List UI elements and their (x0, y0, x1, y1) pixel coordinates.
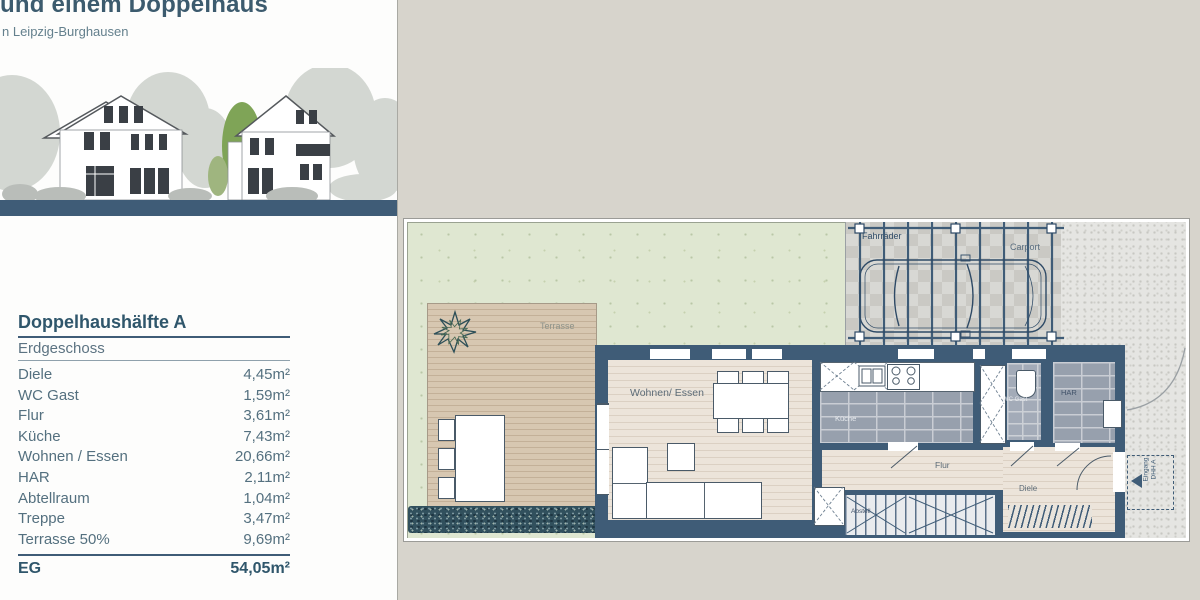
window (1012, 349, 1046, 359)
door-gap-kitchen (888, 442, 918, 451)
terrace-door (597, 403, 609, 495)
row-label: Wohnen / Essen (18, 447, 128, 468)
total-row: EG54,05m² (18, 554, 290, 578)
terrace-chair (438, 448, 455, 470)
row-value: 4,45m² (243, 365, 290, 386)
table-row: Flur3,61m² (18, 406, 290, 427)
terrace-chair (438, 477, 455, 499)
entrance-door (1113, 452, 1125, 492)
window (752, 349, 782, 359)
page-title: und einem Doppelhaus (0, 0, 268, 19)
tall-cabinet (980, 365, 1006, 444)
total-value: 54,05m² (230, 560, 290, 578)
row-label: Flur (18, 406, 44, 427)
washing-machine (1103, 400, 1122, 428)
row-value: 20,66m² (235, 447, 290, 468)
flur-label: Flur (935, 460, 950, 470)
row-label: Abtellraum (18, 489, 90, 510)
staircase (845, 495, 995, 535)
abstell-label: Abstell (851, 508, 871, 515)
dining-chair (717, 418, 739, 433)
plan-sheet: Terrasse Fahrräder Carport (407, 222, 1186, 538)
eingang-label: Eingang DHH A (1143, 446, 1158, 494)
door-gap-har (1055, 443, 1080, 451)
dining-chair (742, 418, 764, 433)
area-table: Doppelhaushälfte A Erdgeschoss Diele4,45… (18, 312, 290, 578)
page: { "header": { "title": "und einem Doppel… (0, 0, 1200, 600)
table-row: HAR2,11m² (18, 468, 290, 489)
floor-label: Erdgeschoss (18, 338, 290, 361)
carport-label: Carport (1010, 242, 1040, 252)
terrace-chair (438, 419, 455, 441)
side-table (667, 443, 695, 471)
floor-plan: Terrasse Fahrräder Carport (403, 218, 1190, 542)
elevation-drawing (0, 68, 397, 216)
row-value: 3,47m² (243, 509, 290, 530)
terrace-label: Terrasse (540, 321, 575, 331)
bikes-label: Fahrräder (862, 231, 902, 241)
entrance-zone: Eingang DHH A (1127, 455, 1174, 510)
row-value: 2,11m² (244, 468, 290, 489)
row-label: WC Gast (18, 386, 79, 407)
row-label: Diele (18, 365, 52, 386)
house: Wohnen/ Essen Küche WC Gast HAR Flur Die… (595, 345, 1125, 538)
row-value: 1,04m² (243, 489, 290, 510)
har-label: HAR (1061, 388, 1077, 397)
sofa-chaise (612, 447, 648, 519)
wohnen-essen-label: Wohnen/ Essen (630, 387, 704, 399)
wc-gast-label: WC Gast (1003, 397, 1027, 403)
hedge (408, 506, 600, 533)
table-row: WC Gast1,59m² (18, 386, 290, 407)
row-label: Terrasse 50% (18, 530, 110, 551)
table-row: Abtellraum1,04m² (18, 489, 290, 510)
row-label: HAR (18, 468, 50, 489)
row-label: Küche (18, 427, 61, 448)
terrace-table (455, 415, 505, 502)
ground-band (0, 200, 397, 216)
doormat (1008, 505, 1092, 528)
wardrobe (814, 487, 845, 526)
total-label: EG (18, 560, 41, 578)
window (650, 349, 690, 359)
window (712, 349, 746, 359)
row-value: 3,61m² (243, 406, 290, 427)
dining-chair (767, 418, 789, 433)
row-label: Treppe (18, 509, 65, 530)
row-value: 7,43m² (243, 427, 290, 448)
sofa (646, 482, 762, 519)
diele-label: Diele (1019, 484, 1037, 493)
window (898, 349, 934, 359)
left-panel: und einem Doppelhaus n Leipzig-Burghause… (0, 0, 397, 600)
toilet (1016, 370, 1036, 398)
table-row: Treppe3,47m² (18, 509, 290, 530)
table-row: Diele4,45m² (18, 365, 290, 386)
room-flur (822, 450, 1003, 490)
stove (887, 364, 920, 390)
table-row: Küche7,43m² (18, 427, 290, 448)
window (973, 349, 985, 359)
page-subtitle: n Leipzig-Burghausen (2, 24, 128, 39)
table-row: Terrasse 50%9,69m² (18, 530, 290, 551)
kueche-label: Küche (835, 414, 856, 423)
dining-table (713, 383, 789, 419)
row-value: 1,59m² (243, 386, 290, 407)
row-value: 9,69m² (243, 530, 290, 551)
door-gap-wc (1010, 442, 1034, 451)
table-title: Doppelhaushälfte A (18, 312, 290, 338)
table-row: Wohnen / Essen20,66m² (18, 447, 290, 468)
